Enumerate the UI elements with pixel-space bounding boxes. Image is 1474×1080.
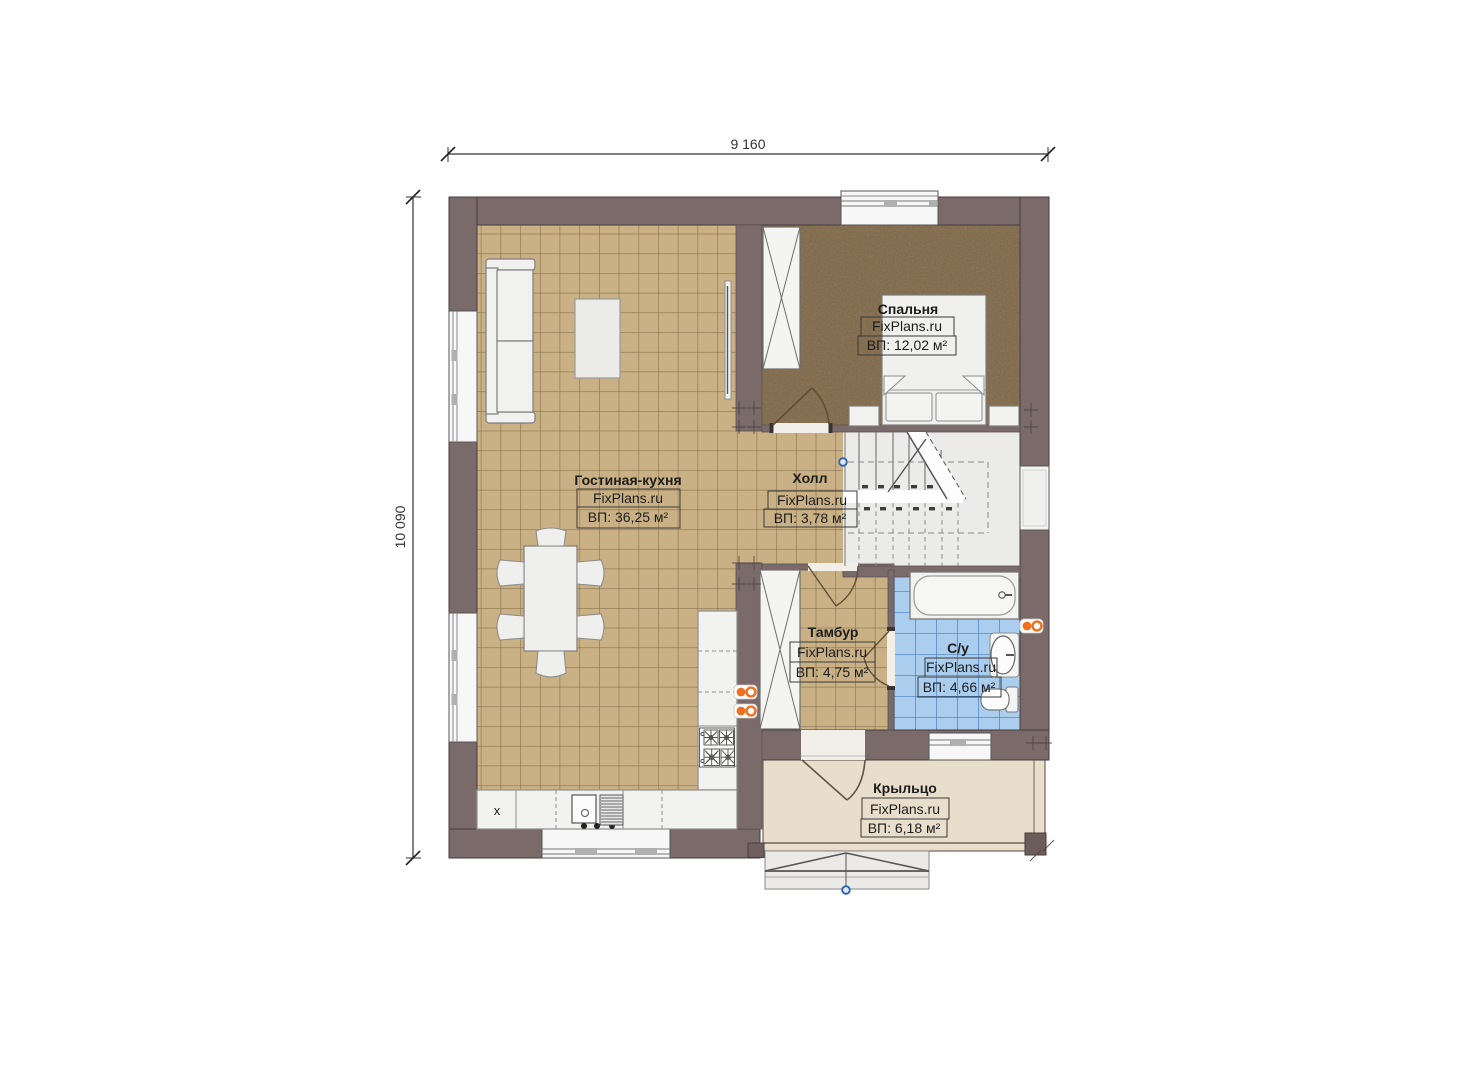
svg-text:ВП: 6,18 м²: ВП: 6,18 м² (868, 820, 941, 836)
svg-text:FixPlans.ru: FixPlans.ru (870, 801, 940, 817)
svg-text:FixPlans.ru: FixPlans.ru (777, 492, 847, 508)
svg-text:Крыльцо: Крыльцо (873, 780, 937, 796)
svg-text:С/у: С/у (947, 640, 969, 656)
svg-text:ВП: 4,66 м²: ВП: 4,66 м² (923, 679, 996, 695)
svg-text:x: x (494, 803, 501, 818)
svg-text:ВП: 12,02 м²: ВП: 12,02 м² (867, 337, 948, 353)
svg-text:FixPlans.ru: FixPlans.ru (872, 318, 942, 334)
svg-text:ВП: 3,78 м²: ВП: 3,78 м² (774, 510, 847, 526)
svg-text:FixPlans.ru: FixPlans.ru (797, 644, 867, 660)
svg-text:10 090: 10 090 (392, 505, 408, 548)
svg-text:FixPlans.ru: FixPlans.ru (926, 659, 996, 675)
svg-text:Гостиная-кухня: Гостиная-кухня (574, 472, 681, 488)
svg-text:ВП: 36,25 м²: ВП: 36,25 м² (588, 509, 669, 525)
svg-text:Тамбур: Тамбур (808, 624, 859, 640)
svg-text:ВП: 4,75 м²: ВП: 4,75 м² (796, 664, 869, 680)
svg-text:Спальня: Спальня (878, 301, 938, 317)
svg-text:FixPlans.ru: FixPlans.ru (593, 490, 663, 506)
svg-text:9 160: 9 160 (730, 136, 765, 152)
svg-text:Холл: Холл (792, 470, 827, 486)
